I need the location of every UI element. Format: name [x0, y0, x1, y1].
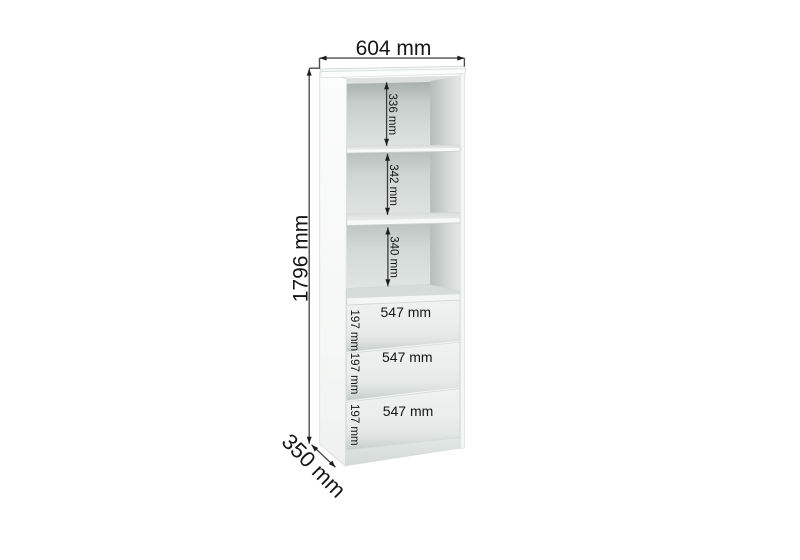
svg-text:197 mm: 197 mm [348, 310, 360, 352]
svg-text:197 mm: 197 mm [348, 353, 360, 395]
svg-text:547 mm: 547 mm [381, 304, 432, 320]
svg-text:1796 mm: 1796 mm [290, 215, 313, 303]
svg-text:342 mm: 342 mm [387, 164, 399, 206]
svg-text:336 mm: 336 mm [386, 94, 398, 136]
svg-text:604 mm: 604 mm [356, 37, 432, 60]
svg-text:340 mm: 340 mm [387, 236, 399, 278]
svg-text:547 mm: 547 mm [382, 349, 433, 365]
svg-text:547 mm: 547 mm [383, 403, 434, 419]
svg-text:197 mm: 197 mm [348, 404, 360, 446]
